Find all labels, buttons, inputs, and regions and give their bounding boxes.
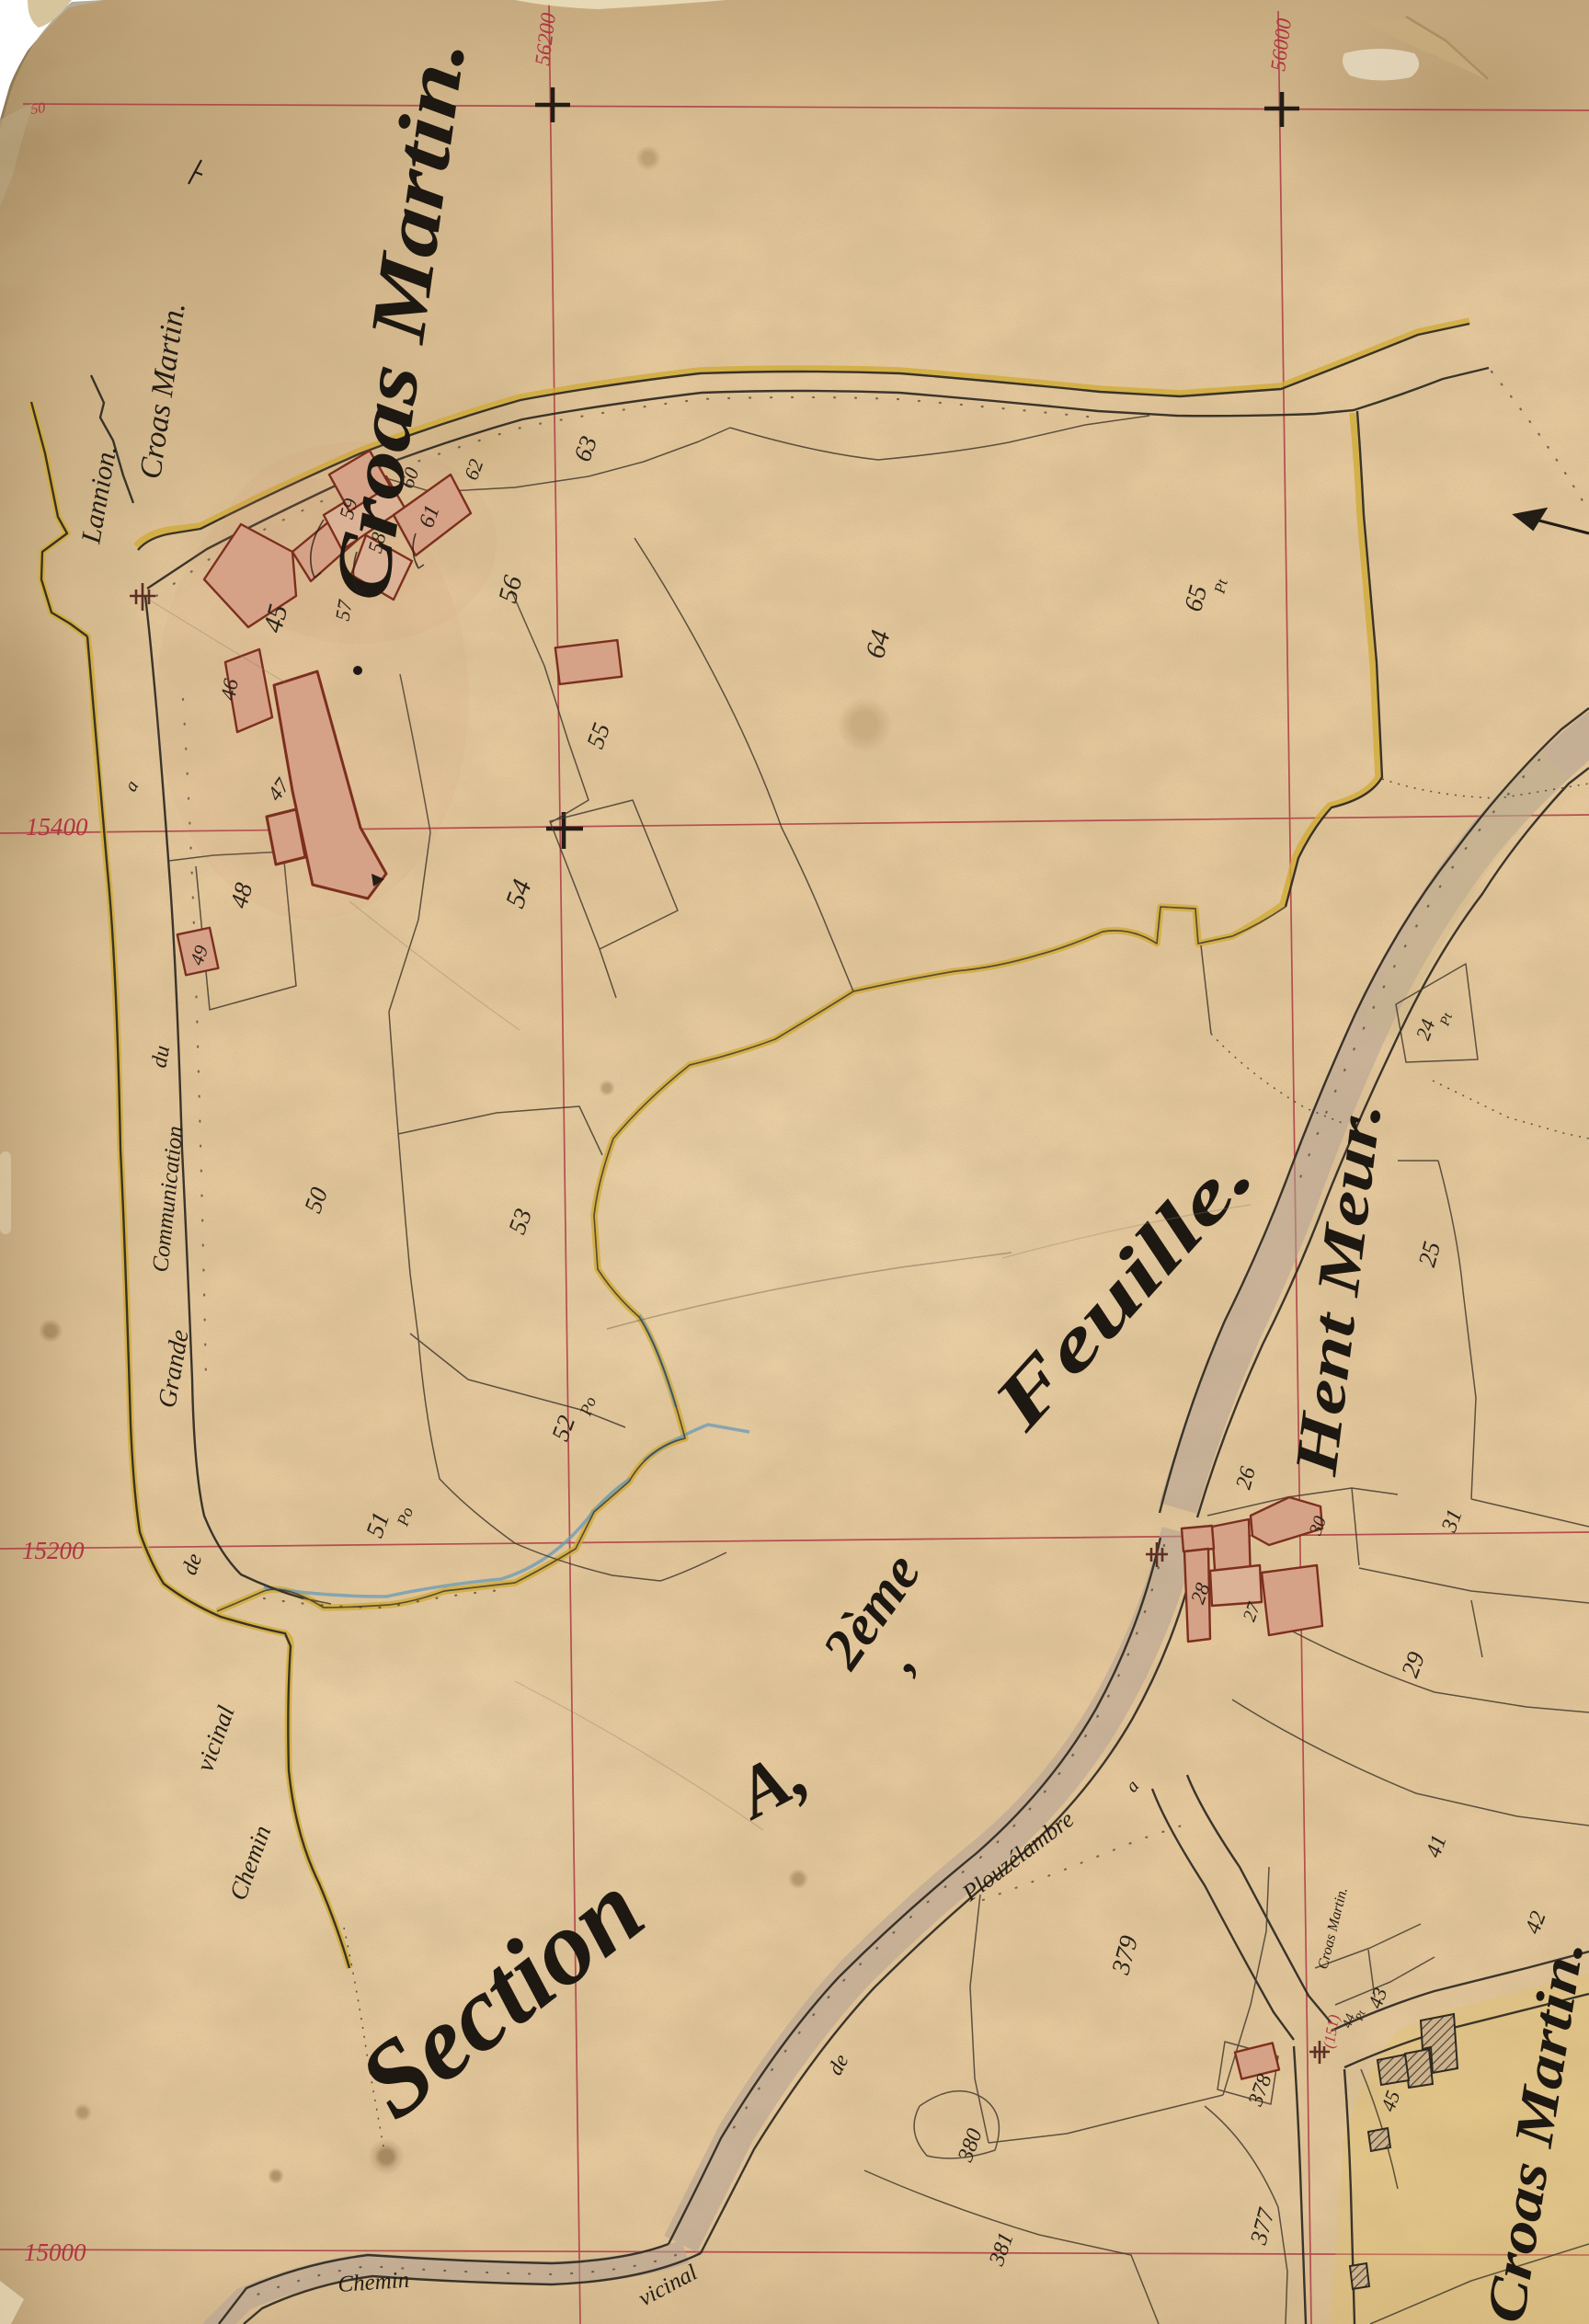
svg-text:15200: 15200	[22, 1537, 85, 1564]
svg-text:du: du	[147, 1044, 175, 1070]
svg-text:Chemin: Chemin	[337, 2268, 410, 2297]
svg-text:15000: 15000	[24, 2238, 86, 2266]
svg-text:46: 46	[216, 677, 243, 702]
svg-text:15400: 15400	[26, 813, 88, 841]
svg-text:50: 50	[29, 100, 46, 118]
